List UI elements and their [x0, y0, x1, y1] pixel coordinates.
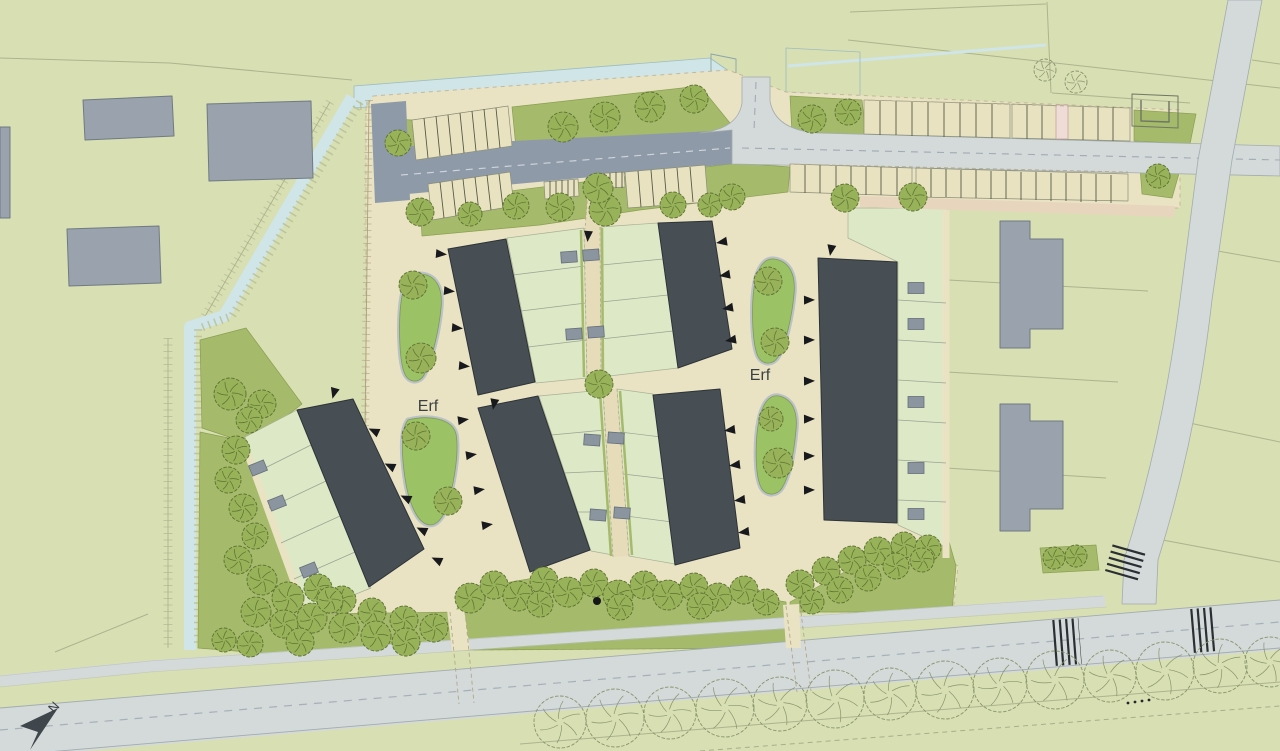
erf-label-east: Erf: [750, 367, 771, 384]
existing-building: [207, 101, 313, 181]
tree-symbol: [719, 184, 745, 210]
tree-symbol: [660, 192, 686, 218]
tree-symbol: [402, 422, 430, 450]
tree-symbol: [237, 631, 263, 657]
tree-symbol: [272, 582, 304, 614]
tree-symbol: [317, 587, 343, 613]
tree-symbol: [548, 112, 578, 142]
parking-stall-highlight: [1056, 105, 1068, 139]
garden-shed: [583, 249, 600, 261]
garden-shed: [908, 283, 924, 294]
garden-shed: [566, 328, 583, 340]
tree-symbol: [458, 202, 482, 226]
tree-symbol: [222, 436, 250, 464]
tree-symbol: [546, 193, 574, 221]
tree-symbol: [212, 628, 236, 652]
garden-shed: [908, 397, 924, 408]
existing-building: [83, 96, 174, 140]
tree-symbol: [583, 173, 613, 203]
tree-symbol: [831, 184, 859, 212]
tree-symbol: [406, 343, 436, 373]
gate-mark: [1141, 700, 1144, 703]
tree-symbol: [827, 577, 853, 603]
tree-symbol: [590, 102, 620, 132]
parking-row-ne1: [864, 100, 1010, 138]
tree-symbol: [329, 613, 359, 643]
tree-symbol: [214, 378, 246, 410]
tree-symbol: [553, 577, 583, 607]
site-plan-page: ErfErfN: [0, 0, 1280, 751]
tree-symbol: [229, 494, 257, 522]
garden-shed: [614, 507, 631, 519]
tree-symbol: [215, 467, 241, 493]
tree-symbol: [392, 628, 420, 656]
gate-mark: [1148, 699, 1151, 702]
tree-symbol: [527, 591, 553, 617]
garden-shed: [590, 509, 607, 521]
existing-building: [67, 226, 161, 286]
tree-symbol: [698, 193, 722, 217]
tree-symbol: [242, 523, 268, 549]
tree-symbol: [761, 328, 789, 356]
tree-symbol: [883, 553, 909, 579]
tree-symbol: [680, 85, 708, 113]
tree-symbol: [899, 183, 927, 211]
tree-symbol: [361, 621, 391, 651]
tree-symbol: [1043, 547, 1065, 569]
garden-shed: [908, 509, 924, 520]
tree-symbol: [763, 448, 793, 478]
tree-symbol: [835, 99, 861, 125]
gate-mark: [1134, 701, 1137, 704]
tree-symbol: [653, 580, 683, 610]
housing-block: [818, 258, 897, 523]
site-plan-map: ErfErfN: [0, 0, 1280, 751]
tree-symbol: [1146, 164, 1170, 188]
garden-shed: [584, 434, 601, 446]
tree-symbol: [503, 193, 529, 219]
parking-row-ne2: [1012, 104, 1130, 141]
tree-symbol: [687, 593, 713, 619]
tree-symbol: [247, 565, 277, 595]
gate-mark: [1127, 702, 1130, 705]
tree-symbol: [286, 628, 314, 656]
tree-symbol: [753, 589, 779, 615]
tree-symbol: [406, 198, 434, 226]
tree-symbol: [434, 487, 462, 515]
tree-symbol: [635, 92, 665, 122]
tree-symbol: [1065, 545, 1087, 567]
tree-symbol: [855, 565, 881, 591]
tree-symbol: [754, 267, 782, 295]
garden-shed: [561, 251, 578, 263]
garden-shed: [908, 463, 924, 474]
exit-path-east: [783, 604, 801, 648]
tree-symbol: [385, 130, 411, 156]
existing-farm-building: [1000, 221, 1063, 348]
tree-symbol: [585, 370, 613, 398]
tree-symbol: [910, 548, 934, 572]
garden-shed: [908, 319, 924, 330]
tree-symbol: [759, 407, 783, 431]
tree-symbol: [241, 597, 271, 627]
tree-symbol: [399, 271, 427, 299]
garden-shed: [608, 432, 625, 444]
tree-symbol: [420, 614, 448, 642]
tree-symbol: [798, 105, 826, 133]
tree-symbol: [607, 594, 633, 620]
tree-dot-symbol: [593, 597, 601, 605]
erf-label-west: Erf: [418, 398, 439, 415]
tree-symbol: [224, 546, 252, 574]
tree-symbol: [800, 590, 824, 614]
existing-building: [0, 127, 10, 218]
garden-shed: [588, 326, 605, 338]
tree-symbol: [236, 407, 262, 433]
